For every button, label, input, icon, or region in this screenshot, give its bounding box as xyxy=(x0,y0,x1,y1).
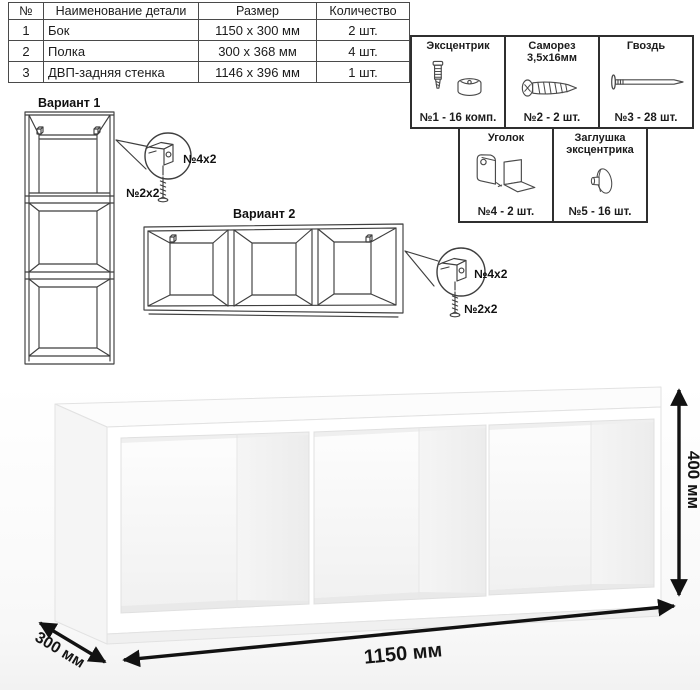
screw-qty-label: №2х2 xyxy=(464,302,498,316)
shelf-compartment xyxy=(121,432,309,613)
variant1-callout: №4х2 №2х2 xyxy=(116,133,217,202)
variant2-drawing: Вариант 2 xyxy=(144,207,403,317)
screw-icon xyxy=(158,177,168,202)
assembly-diagram: Вариант 1 №4х2 №2х2 xyxy=(0,0,700,690)
variant2-callout: №4х2 №2х2 xyxy=(405,248,508,317)
variant1-title: Вариант 1 xyxy=(38,96,100,110)
shelf-side-face xyxy=(55,404,107,644)
screw-qty-label: №2х2 xyxy=(126,186,160,200)
variant2-title: Вариант 2 xyxy=(233,207,295,221)
shelf-compartment xyxy=(489,419,654,595)
shelf-compartment xyxy=(314,425,486,604)
variant1-drawing: Вариант 1 xyxy=(25,96,114,364)
product-render: 1150 мм 300 мм 400 мм xyxy=(0,383,700,690)
bracket-qty-label: №4х2 xyxy=(183,152,217,166)
assembly-instruction-sheet: № Наименование детали Размер Количество … xyxy=(0,0,700,690)
height-dimension-label: 400 мм xyxy=(684,451,700,509)
bracket-qty-label: №4х2 xyxy=(474,267,508,281)
